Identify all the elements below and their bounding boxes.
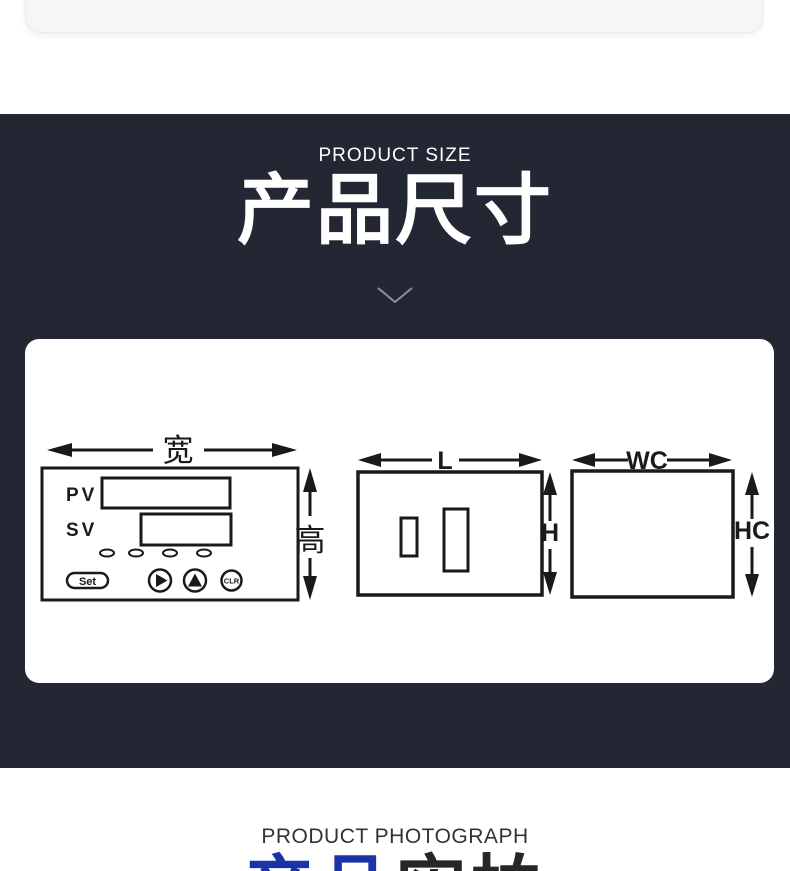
previous-section-card	[25, 0, 763, 33]
dimension-diagram: 宽 PV SV	[25, 339, 774, 683]
front-width-label: 宽	[163, 433, 194, 468]
set-button: Set	[67, 573, 108, 588]
panel-cutout-diagram: L H	[358, 447, 559, 595]
cutout-height-label: H	[541, 519, 559, 547]
front-height-label: 高	[295, 523, 326, 558]
title-blue-part: 产品	[243, 850, 395, 871]
section-eyebrow: PRODUCT SIZE	[0, 146, 790, 165]
case-diagram: WC HC	[572, 447, 770, 597]
sv-label: SV	[66, 520, 97, 541]
sv-display	[141, 514, 231, 545]
svg-text:CLR: CLR	[224, 577, 240, 586]
case-height-label: HC	[734, 517, 770, 545]
product-size-section: PRODUCT SIZE 产品尺寸 宽 PV	[0, 114, 790, 768]
section-title-cn-partial: 产品实拍	[0, 854, 790, 871]
section-title-cn: 产品尺寸	[0, 173, 790, 250]
svg-text:Set: Set	[79, 576, 96, 588]
cutout-slot-large	[444, 509, 468, 571]
page: PRODUCT SIZE 产品尺寸 宽 PV	[0, 0, 790, 871]
cutout-slot-small	[401, 518, 417, 556]
front-view-diagram: 宽 PV SV	[42, 433, 326, 600]
title-dark-part: 实拍	[395, 850, 547, 871]
pv-label: PV	[66, 485, 97, 506]
right-arrow-button	[149, 570, 171, 592]
pv-display	[102, 478, 230, 508]
chevron-down-icon	[376, 286, 414, 304]
clr-button: CLR	[222, 571, 242, 591]
indicator-lamps	[100, 550, 211, 557]
dimension-diagram-card: 宽 PV SV	[25, 339, 774, 683]
section-eyebrow: PRODUCT PHOTOGRAPH	[0, 826, 790, 847]
product-photograph-section: PRODUCT PHOTOGRAPH 产品实拍	[0, 768, 790, 871]
up-arrow-button	[184, 570, 206, 592]
